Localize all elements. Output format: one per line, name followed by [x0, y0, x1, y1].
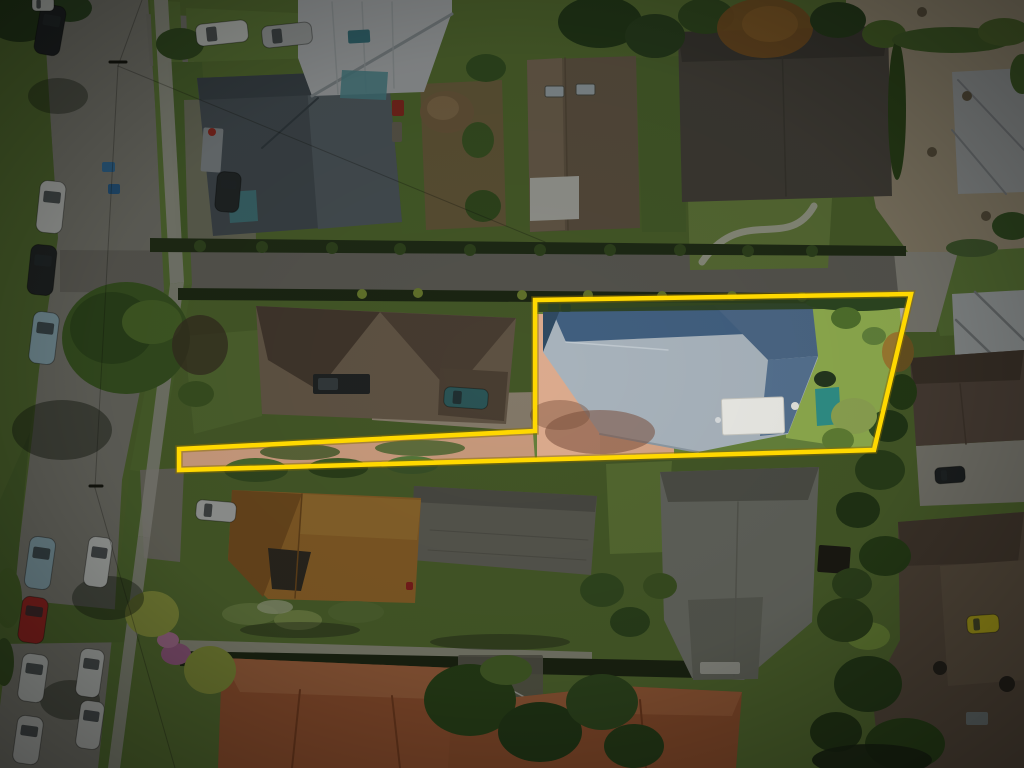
photo-vignette	[0, 0, 1024, 768]
aerial-photo-canvas	[0, 0, 1024, 768]
aerial-photo	[0, 0, 1024, 768]
